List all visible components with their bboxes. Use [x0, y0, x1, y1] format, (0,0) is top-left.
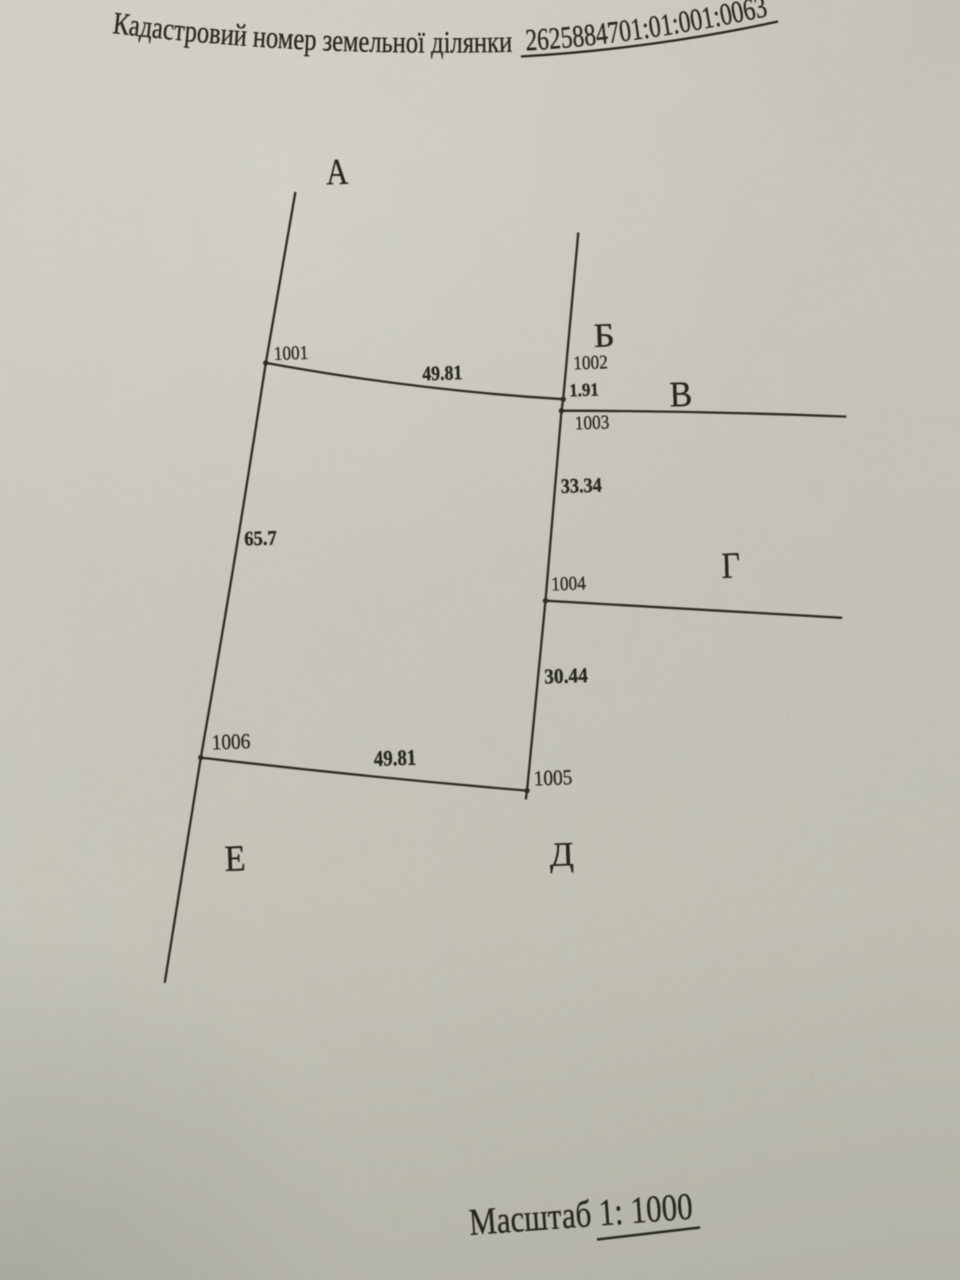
svg-text:1001: 1001	[273, 343, 308, 365]
svg-text:Е: Е	[224, 838, 246, 880]
svg-text:49.81: 49.81	[422, 362, 463, 385]
svg-text:1003: 1003	[574, 412, 609, 434]
svg-text:Г: Г	[721, 545, 741, 587]
svg-text:1005: 1005	[533, 765, 572, 790]
svg-text:Б: Б	[593, 317, 615, 355]
svg-text:65.7: 65.7	[244, 527, 277, 550]
svg-text:А: А	[325, 152, 349, 194]
svg-text:1002: 1002	[573, 352, 608, 374]
svg-text:1004: 1004	[551, 573, 586, 595]
svg-text:В: В	[669, 374, 693, 415]
svg-text:1.91: 1.91	[569, 380, 599, 401]
svg-text:33.34: 33.34	[560, 475, 602, 498]
svg-text:Д: Д	[549, 836, 574, 874]
svg-text:30.44: 30.44	[544, 663, 589, 689]
svg-text:49.81: 49.81	[373, 745, 416, 771]
svg-text:1006: 1006	[211, 729, 251, 754]
